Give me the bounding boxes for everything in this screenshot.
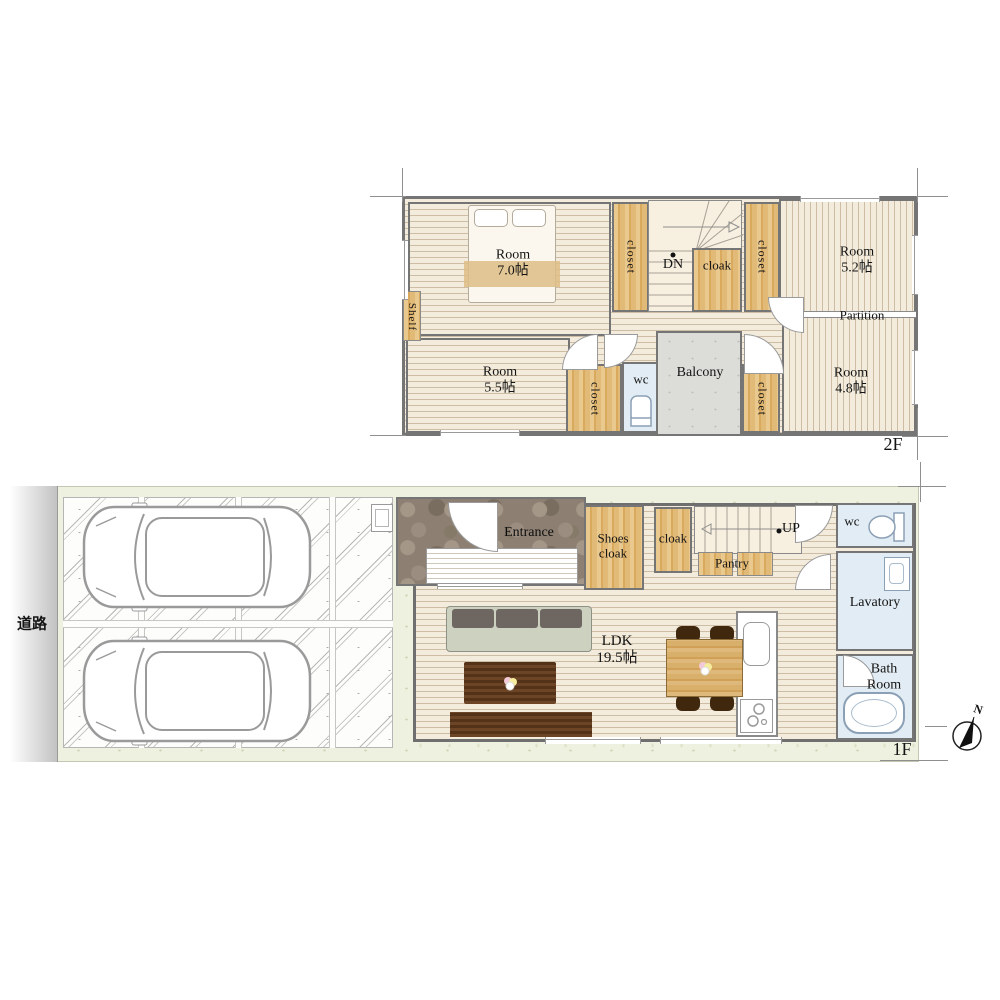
floorplan-canvas: Room 7.0帖 Shelf Room 5.5帖 closet DN cloa… <box>0 0 1000 1000</box>
cloak-1f-label: cloak <box>659 532 687 547</box>
room55-label: Room 5.5帖 <box>483 364 517 395</box>
shoes-cloak-label: Shoes cloak <box>597 531 628 560</box>
floor1-label: 1F <box>892 739 911 759</box>
window <box>660 737 782 744</box>
dimension-mark <box>916 196 948 197</box>
room70-label: Room 7.0帖 <box>496 247 530 278</box>
closet-label: closet <box>588 382 601 416</box>
bathtub <box>843 692 905 734</box>
balcony <box>656 331 742 436</box>
tv-board <box>450 712 592 737</box>
room48-label: Room 4.8帖 <box>834 365 868 396</box>
up-label: UP <box>782 521 800 537</box>
sofa-cushion <box>496 609 538 628</box>
window <box>800 196 880 202</box>
room48-name: Room <box>834 365 868 381</box>
pantry-label: Pantry <box>715 557 749 572</box>
ldk-size: 19.5帖 <box>596 650 637 667</box>
window <box>440 430 520 436</box>
dimension-mark <box>925 726 947 727</box>
sofa-cushion <box>452 609 494 628</box>
parking-divider <box>63 620 393 628</box>
dimension-mark <box>370 435 406 436</box>
wc-2f-label: wc <box>633 373 648 388</box>
partition-label: Partition <box>840 309 885 324</box>
washing-machine <box>884 557 910 591</box>
bathtub-inner <box>851 699 897 727</box>
room52-name: Room <box>840 244 874 260</box>
bath-room-line1: Bath <box>867 661 901 677</box>
bath-room-label: Bath Room <box>867 661 901 692</box>
room52-size: 5.2帖 <box>840 260 874 276</box>
dn-label: DN <box>663 257 683 273</box>
lavatory-label: Lavatory <box>850 595 901 611</box>
room70-name: Room <box>496 247 530 263</box>
ldk-name: LDK <box>596 633 637 650</box>
shoes-cloak-line2: cloak <box>597 546 628 561</box>
kitchen-stove <box>740 699 773 733</box>
utility-box-inner <box>375 509 389 527</box>
entrance-label: Entrance <box>504 525 554 541</box>
window <box>912 350 918 405</box>
window <box>402 240 408 300</box>
dining-chair <box>710 695 734 711</box>
closet-label: closet <box>755 240 768 274</box>
bath-room-line2: Room <box>867 677 901 693</box>
dimension-mark <box>920 462 921 502</box>
road-label: 道路 <box>17 617 47 634</box>
flower-icon <box>502 675 518 696</box>
sofa-cushion <box>540 609 582 628</box>
balcony-label: Balcony <box>677 365 724 381</box>
closet-label: closet <box>624 240 637 274</box>
stove-burners <box>741 700 771 731</box>
kitchen-sink <box>743 622 770 666</box>
floor2-label: 2F <box>883 434 902 454</box>
room70-size: 7.0帖 <box>496 263 530 279</box>
cloak-2f-label: cloak <box>703 259 731 274</box>
bed-pillow-right <box>512 209 546 227</box>
window <box>912 235 918 295</box>
dimension-mark <box>902 436 948 437</box>
dimension-mark <box>898 486 946 487</box>
bed-pillow-left <box>474 209 508 227</box>
compass: N <box>946 700 990 756</box>
wc-1f-label: wc <box>844 515 859 530</box>
closet-label: closet <box>755 382 768 416</box>
ldk-label: LDK 19.5帖 <box>596 633 637 667</box>
window <box>437 584 523 589</box>
dimension-mark <box>370 196 406 197</box>
shelf-label: Shelf <box>406 303 418 331</box>
car-top <box>80 502 314 612</box>
room55-name: Room <box>483 364 517 380</box>
room48-size: 4.8帖 <box>834 381 868 397</box>
shoes-cloak-line1: Shoes <box>597 531 628 546</box>
room52-label: Room 5.2帖 <box>840 244 874 275</box>
car-bottom <box>80 636 314 746</box>
utility-box <box>371 504 393 532</box>
dimension-mark <box>880 760 948 761</box>
entrance-step <box>426 548 578 584</box>
room55-size: 5.5帖 <box>483 380 517 396</box>
window <box>545 737 641 744</box>
dining-chair <box>676 695 700 711</box>
dimension-mark <box>917 408 918 460</box>
washing-machine-drum <box>889 563 904 584</box>
flower-icon <box>697 660 713 681</box>
